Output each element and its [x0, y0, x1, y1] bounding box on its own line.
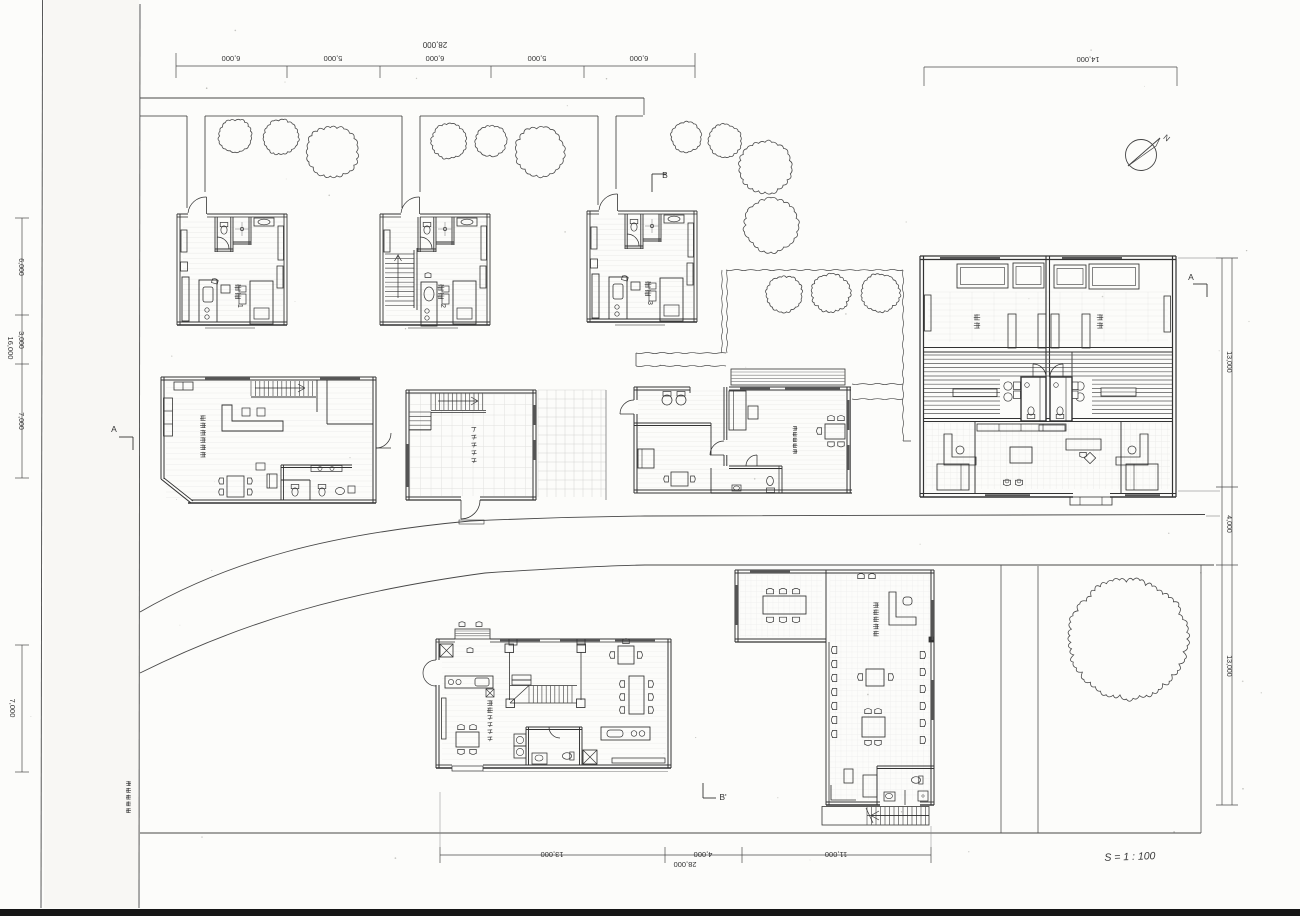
- svg-text:A: A: [1188, 272, 1194, 282]
- svg-text:B: B: [662, 170, 668, 180]
- svg-text:6,000: 6,000: [222, 54, 241, 63]
- svg-text:B': B': [719, 792, 727, 802]
- svg-text:7,000: 7,000: [8, 699, 17, 718]
- svg-text:5,000: 5,000: [324, 54, 343, 63]
- svg-text:A: A: [111, 424, 117, 434]
- svg-text:6,000: 6,000: [17, 258, 24, 276]
- svg-text:S = 1 : 100: S = 1 : 100: [1104, 850, 1156, 864]
- svg-text:4,000: 4,000: [694, 850, 713, 859]
- svg-text:28,000: 28,000: [674, 860, 697, 869]
- svg-text:13,000: 13,000: [1225, 351, 1232, 373]
- svg-text:11,000: 11,000: [825, 850, 847, 859]
- svg-text:13,000: 13,000: [1225, 655, 1232, 677]
- svg-text:16,000: 16,000: [6, 337, 15, 360]
- svg-text:7,000: 7,000: [17, 412, 24, 430]
- svg-text:28,000: 28,000: [422, 40, 447, 49]
- svg-text:5,000: 5,000: [528, 54, 547, 63]
- svg-text:13,000: 13,000: [541, 850, 564, 859]
- svg-text:3: 3: [646, 301, 653, 305]
- svg-text:4,000: 4,000: [1225, 515, 1232, 533]
- svg-text:6,000: 6,000: [426, 54, 445, 63]
- svg-text:14,000: 14,000: [1077, 55, 1100, 64]
- svg-text:3,000: 3,000: [17, 331, 24, 349]
- svg-text:2: 2: [439, 304, 446, 308]
- svg-text:6,000: 6,000: [630, 54, 649, 63]
- svg-text:1: 1: [236, 304, 243, 308]
